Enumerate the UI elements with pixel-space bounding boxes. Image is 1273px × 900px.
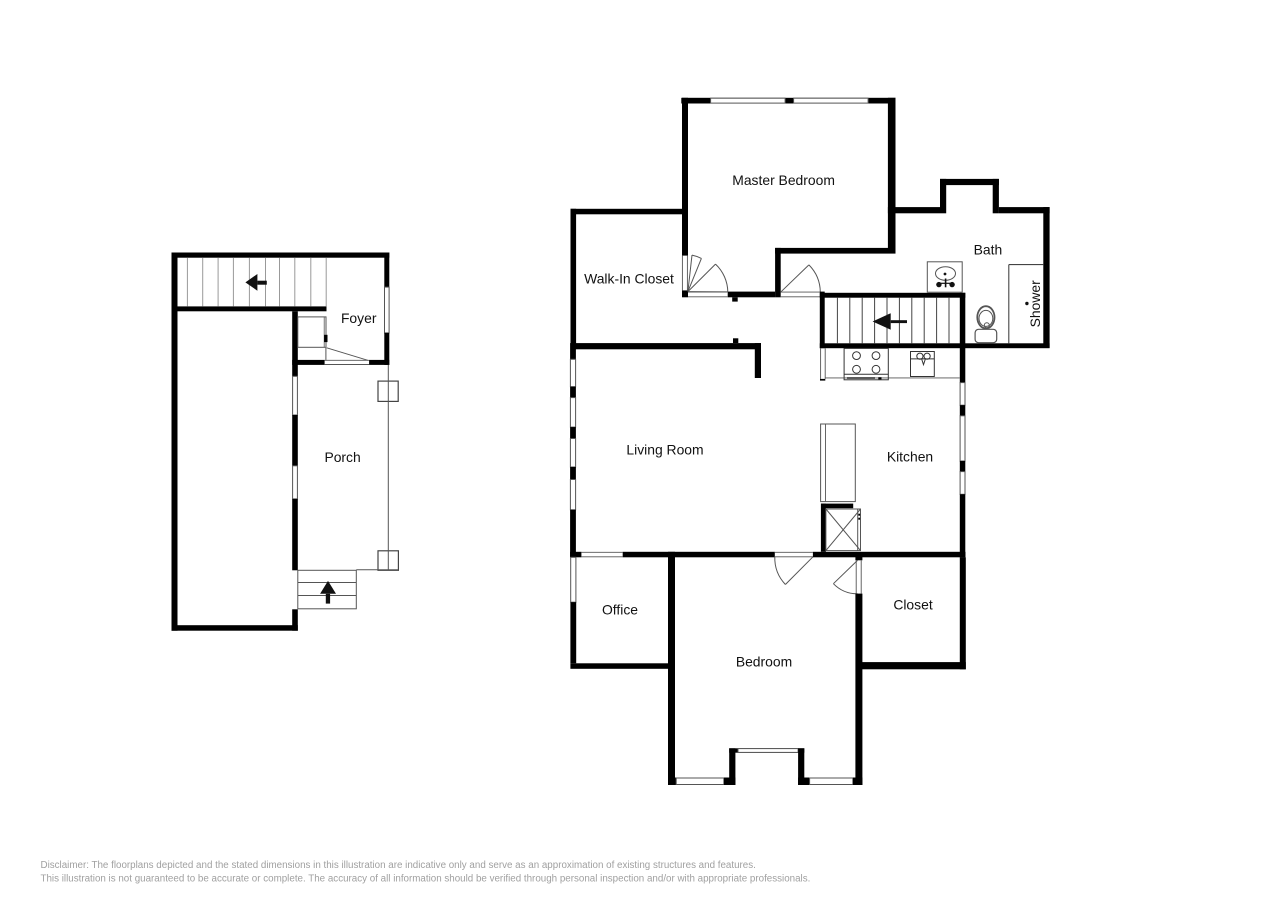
svg-text:Foyer: Foyer bbox=[341, 310, 377, 326]
svg-text:Closet: Closet bbox=[893, 597, 933, 613]
svg-text:Porch: Porch bbox=[324, 449, 360, 465]
svg-text:Walk-In Closet: Walk-In Closet bbox=[584, 271, 674, 287]
svg-text:Disclaimer: The floorplans dep: Disclaimer: The floorplans depicted and … bbox=[41, 860, 756, 871]
svg-text:Kitchen: Kitchen bbox=[887, 449, 933, 465]
svg-text:Bath: Bath bbox=[974, 242, 1003, 258]
svg-text:Master Bedroom: Master Bedroom bbox=[732, 172, 835, 188]
svg-text:Bedroom: Bedroom bbox=[736, 654, 792, 670]
svg-text:This illustration is not guara: This illustration is not guaranteed to b… bbox=[41, 874, 811, 885]
svg-text:Living Room: Living Room bbox=[626, 442, 703, 458]
svg-text:Shower: Shower bbox=[1027, 280, 1043, 327]
svg-text:Office: Office bbox=[602, 602, 638, 618]
